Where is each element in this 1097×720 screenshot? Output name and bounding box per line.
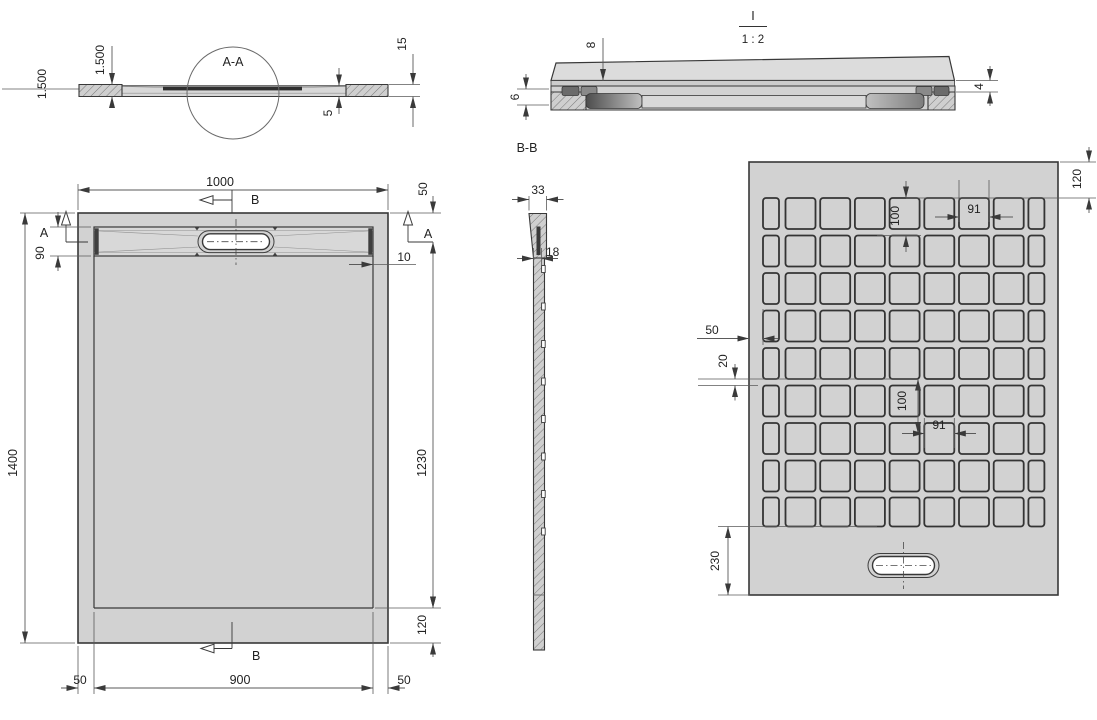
cut-label-a-right: A xyxy=(424,227,433,241)
side-channel-slot xyxy=(537,227,541,256)
relief-square xyxy=(820,386,850,417)
dim-channel-depth: 90 xyxy=(33,246,47,260)
view-section-aa: A-A 1.500 1.500 5 15 xyxy=(2,37,420,139)
view-detail-i: I 1 : 2 8 6 4 B-B xyxy=(508,9,998,155)
relief-square xyxy=(959,348,989,379)
relief-grid xyxy=(763,198,1044,527)
relief-square xyxy=(763,386,779,417)
relief-square xyxy=(959,311,989,342)
relief-square xyxy=(959,386,989,417)
relief-square xyxy=(924,236,954,267)
detail-title: I xyxy=(751,9,754,23)
relief-square xyxy=(1028,311,1044,342)
drawing-svg: A-A 1.500 1.500 5 15 I 1 : 2 8 xyxy=(0,0,1097,720)
section-arrow-b-top-icon xyxy=(200,196,213,205)
relief-square xyxy=(820,423,850,454)
dim-top-offset: 50 xyxy=(416,182,430,196)
dim-side-thickness: 18 xyxy=(546,245,560,259)
relief-square xyxy=(763,461,779,492)
section-arrow-b-bottom-icon xyxy=(201,644,214,653)
detail-scale: 1 : 2 xyxy=(742,34,764,46)
relief-square xyxy=(786,236,816,267)
relief-square xyxy=(820,236,850,267)
relief-square xyxy=(994,461,1024,492)
relief-square xyxy=(855,273,885,304)
dim-foot-left: 50 xyxy=(73,673,87,687)
relief-square xyxy=(959,273,989,304)
relief-square xyxy=(1028,273,1044,304)
relief-square xyxy=(1028,236,1044,267)
relief-square xyxy=(1028,198,1044,229)
cut-label-b-bottom: B xyxy=(252,649,260,663)
side-notch xyxy=(542,453,546,460)
hatched-end-right xyxy=(346,85,388,97)
dim-step: 5 xyxy=(321,109,335,116)
relief-square xyxy=(959,461,989,492)
relief-square xyxy=(786,198,816,229)
relief-square xyxy=(924,498,954,527)
cut-label-a-left: A xyxy=(40,226,49,240)
view-bottom: 120 100 91 50 20 100 91 230 xyxy=(697,147,1096,595)
dim-base-right: 4 xyxy=(972,83,986,90)
relief-square xyxy=(855,236,885,267)
cut-label-b-top: B xyxy=(251,193,259,207)
relief-square xyxy=(959,423,989,454)
side-notch xyxy=(542,416,546,423)
view-plan: 1000 B A 90 1400 10 50 A 1230 xyxy=(6,175,441,694)
section-arrow-a-right-icon xyxy=(404,212,413,226)
dim-edge-offset: 50 xyxy=(705,323,719,337)
relief-square xyxy=(763,311,779,342)
relief-square xyxy=(786,348,816,379)
relief-square xyxy=(1028,386,1044,417)
relief-square xyxy=(763,236,779,267)
dim-drain-offset: 230 xyxy=(708,551,722,571)
relief-square xyxy=(994,236,1024,267)
relief-square xyxy=(855,311,885,342)
dim-bottom-margin: 120 xyxy=(415,615,429,635)
relief-square xyxy=(763,273,779,304)
dim-base-left: 6 xyxy=(508,93,522,100)
relief-square xyxy=(890,423,920,454)
relief-square xyxy=(763,348,779,379)
relief-square xyxy=(994,498,1024,527)
relief-square xyxy=(855,198,885,229)
dim-slope-inner: 1.500 xyxy=(93,45,107,75)
side-notch xyxy=(542,491,546,498)
dim-square-width: 91 xyxy=(967,202,981,216)
channel-end-wall xyxy=(368,228,372,255)
dim-mid-square: 91 xyxy=(932,418,946,432)
relief-square xyxy=(890,273,920,304)
dim-plan-height: 1400 xyxy=(6,449,20,477)
drain-channel-section xyxy=(163,87,302,91)
relief-square xyxy=(890,348,920,379)
section-arrow-a-left-icon xyxy=(62,212,71,226)
relief-square xyxy=(959,236,989,267)
relief-square xyxy=(994,348,1024,379)
dim-mid-pitch: 100 xyxy=(895,391,909,411)
relief-square xyxy=(786,423,816,454)
base-mid-bar xyxy=(642,96,866,109)
relief-square xyxy=(890,461,920,492)
relief-square xyxy=(855,386,885,417)
dim-wall-thickness: 10 xyxy=(397,250,411,264)
tray-plate xyxy=(78,213,388,643)
relief-square xyxy=(890,236,920,267)
rail-strip xyxy=(551,81,955,87)
relief-square xyxy=(763,498,779,527)
relief-square xyxy=(994,311,1024,342)
relief-square xyxy=(763,198,779,229)
relief-square xyxy=(855,498,885,527)
dim-bottom-top-margin: 120 xyxy=(1070,169,1084,189)
section-bb-title: B-B xyxy=(517,141,538,155)
dim-plan-width: 1000 xyxy=(206,175,234,189)
relief-square xyxy=(820,198,850,229)
relief-square xyxy=(1028,348,1044,379)
relief-square xyxy=(890,311,920,342)
dim-side-top-width: 33 xyxy=(531,183,545,197)
relief-square xyxy=(994,198,1024,229)
dim-gap: 20 xyxy=(716,354,730,368)
relief-square xyxy=(924,273,954,304)
top-slab xyxy=(551,57,955,81)
side-notch xyxy=(542,341,546,348)
relief-square xyxy=(1028,423,1044,454)
view-side: 33 18 xyxy=(512,183,564,650)
relief-square xyxy=(855,423,885,454)
relief-square xyxy=(786,461,816,492)
side-notch xyxy=(542,266,546,273)
relief-square xyxy=(786,386,816,417)
relief-square xyxy=(763,423,779,454)
side-notch xyxy=(542,378,546,385)
relief-square xyxy=(820,311,850,342)
dim-foot-center: 900 xyxy=(230,673,251,687)
relief-square xyxy=(820,498,850,527)
relief-square xyxy=(855,348,885,379)
relief-square xyxy=(786,498,816,527)
dim-edge-height: 15 xyxy=(395,37,409,51)
relief-square xyxy=(786,273,816,304)
relief-square xyxy=(994,386,1024,417)
relief-square xyxy=(1028,498,1044,527)
relief-square xyxy=(890,498,920,527)
dim-row-pitch: 100 xyxy=(888,206,902,226)
side-notch xyxy=(542,303,546,310)
relief-square xyxy=(994,423,1024,454)
relief-square xyxy=(994,273,1024,304)
side-notch xyxy=(542,528,546,535)
relief-square xyxy=(959,498,989,527)
relief-square xyxy=(924,311,954,342)
channel-end-wall xyxy=(95,228,99,255)
dim-top-thickness: 8 xyxy=(584,41,598,48)
relief-square xyxy=(1028,461,1044,492)
dim-inner-height: 1230 xyxy=(415,449,429,477)
relief-square xyxy=(924,348,954,379)
drain-slot-right xyxy=(866,94,924,109)
relief-square xyxy=(924,198,954,229)
cad-drawing-sheet: A-A 1.500 1.500 5 15 I 1 : 2 8 xyxy=(0,0,1097,720)
relief-square xyxy=(820,461,850,492)
relief-square xyxy=(820,273,850,304)
foot-block xyxy=(934,87,949,96)
relief-square xyxy=(786,311,816,342)
relief-square xyxy=(820,348,850,379)
drain-slot-left xyxy=(586,94,642,109)
hatched-end-left xyxy=(79,85,122,97)
dim-slope-outer: 1.500 xyxy=(35,69,49,99)
relief-square xyxy=(855,461,885,492)
section-aa-title: A-A xyxy=(223,55,245,69)
relief-square xyxy=(924,461,954,492)
relief-square xyxy=(924,386,954,417)
dim-foot-right: 50 xyxy=(397,673,411,687)
foot-block xyxy=(562,87,579,96)
